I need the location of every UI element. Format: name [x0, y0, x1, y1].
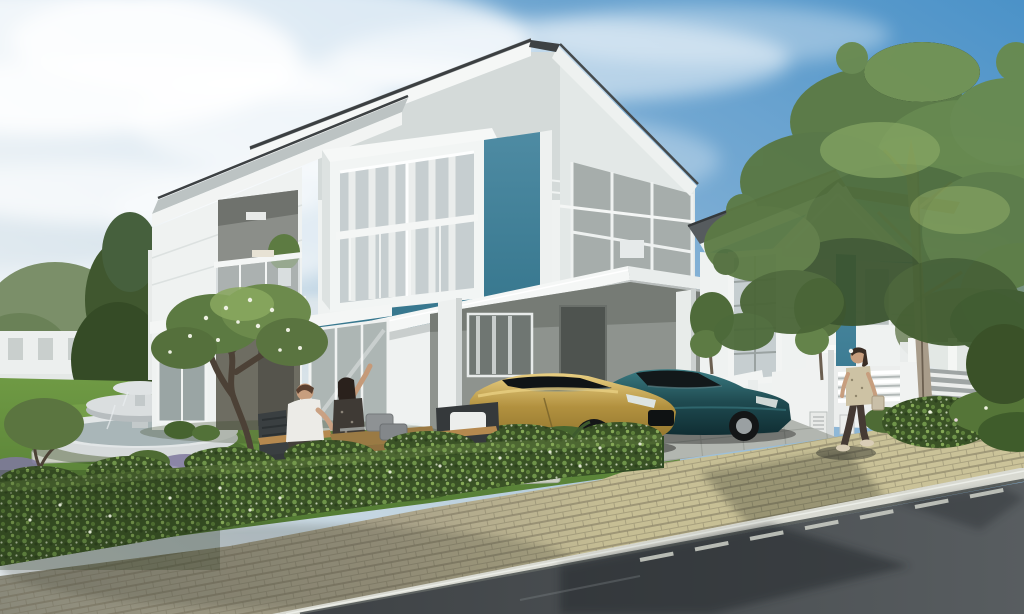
architectural-render [0, 0, 1024, 614]
hair-clip [849, 349, 853, 353]
teal-panel-right [484, 132, 540, 300]
render-canvas [0, 0, 1024, 614]
balcony-light [246, 212, 266, 220]
garden-shrub-tree [4, 398, 84, 450]
gtr-grille [648, 410, 674, 426]
handbag [872, 396, 884, 410]
bay-window [322, 128, 498, 312]
man-shirt [286, 399, 324, 444]
walking-top [846, 366, 874, 406]
